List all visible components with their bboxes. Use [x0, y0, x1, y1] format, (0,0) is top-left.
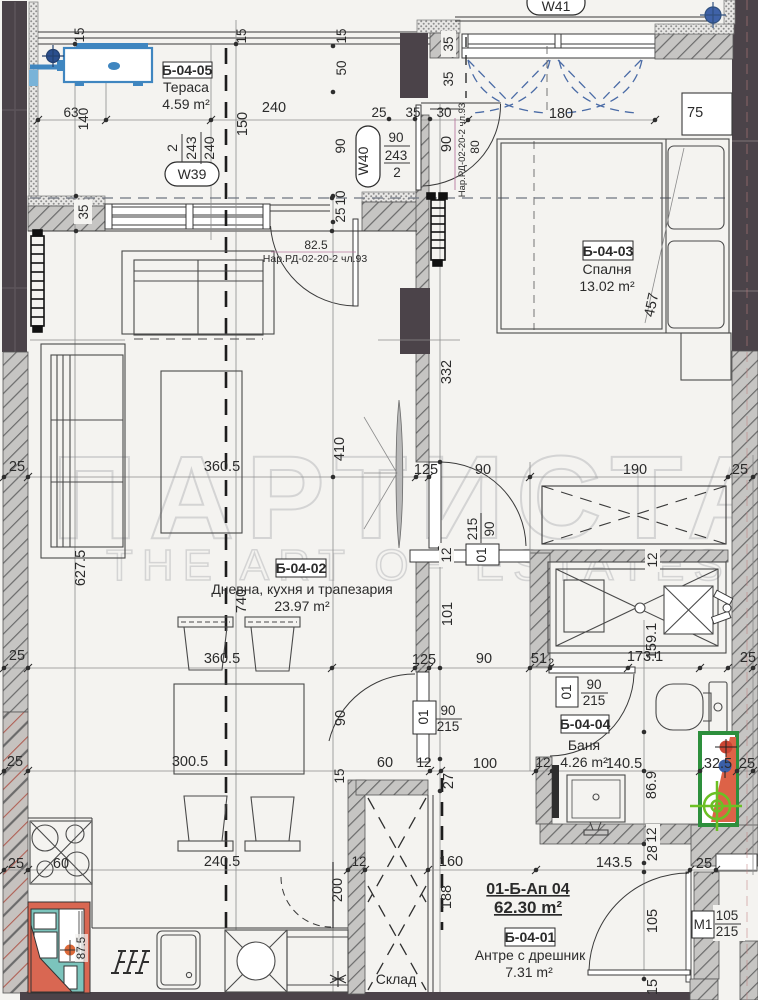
svg-text:15: 15: [234, 28, 249, 43]
svg-text:32.5: 32.5: [704, 756, 732, 772]
svg-text:Антре с дрешник: Антре с дрешник: [475, 947, 586, 963]
svg-text:12: 12: [644, 827, 659, 842]
svg-text:360.5: 360.5: [204, 459, 240, 475]
svg-text:15: 15: [72, 27, 87, 42]
svg-text:25: 25: [732, 462, 748, 478]
svg-text:35: 35: [76, 204, 91, 219]
svg-text:215: 215: [465, 518, 480, 541]
svg-text:01-Б-Ап 04: 01-Б-Ап 04: [486, 881, 570, 898]
svg-text:15: 15: [332, 768, 347, 783]
svg-text:01: 01: [474, 547, 489, 562]
svg-text:27: 27: [441, 773, 457, 789]
svg-text:23.97 m²: 23.97 m²: [274, 598, 330, 614]
svg-text:243: 243: [385, 148, 408, 163]
svg-text:90: 90: [333, 710, 349, 726]
svg-text:105: 105: [716, 908, 739, 923]
svg-text:W39: W39: [178, 166, 207, 182]
svg-text:35: 35: [405, 105, 420, 120]
svg-text:Б-04-05: Б-04-05: [162, 62, 213, 78]
svg-text:143.5: 143.5: [596, 855, 632, 871]
svg-text:332: 332: [439, 360, 455, 384]
svg-text:627.5: 627.5: [73, 550, 89, 586]
svg-text:15: 15: [645, 979, 661, 995]
svg-text:240.5: 240.5: [204, 854, 240, 870]
svg-text:35: 35: [441, 36, 456, 51]
svg-text:Склад: Склад: [376, 971, 417, 987]
svg-text:360.5: 360.5: [204, 651, 240, 667]
svg-text:140: 140: [76, 108, 91, 131]
svg-text:243: 243: [183, 136, 199, 160]
svg-text:62.30 m²: 62.30 m²: [494, 898, 562, 917]
svg-text:90: 90: [476, 651, 492, 667]
svg-text:90: 90: [439, 136, 455, 152]
svg-text:240: 240: [262, 100, 286, 116]
svg-text:180: 180: [549, 106, 573, 122]
svg-text:90: 90: [333, 138, 348, 153]
svg-text:75: 75: [687, 105, 703, 121]
svg-text:Б-04-04: Б-04-04: [560, 716, 611, 732]
svg-text:12: 12: [351, 854, 366, 869]
svg-text:90: 90: [475, 462, 491, 478]
svg-text:Тераса: Тераса: [163, 79, 209, 95]
svg-text:W41: W41: [542, 0, 571, 14]
svg-text:Спалня: Спалня: [583, 261, 632, 277]
svg-text:90: 90: [586, 677, 601, 692]
svg-text:4.26 m²: 4.26 m²: [560, 754, 608, 770]
svg-text:25: 25: [740, 650, 756, 666]
svg-text:50: 50: [334, 60, 349, 75]
svg-text:Б-04-02: Б-04-02: [276, 560, 327, 576]
svg-text:M1: M1: [694, 917, 713, 932]
svg-text:35: 35: [441, 71, 456, 86]
svg-text:190: 190: [623, 462, 647, 478]
svg-text:159.1: 159.1: [644, 623, 660, 659]
svg-text:25: 25: [333, 207, 348, 222]
svg-text:Нар.РД-02-20-2 чл.93: Нар.РД-02-20-2 чл.93: [457, 103, 468, 197]
svg-text:01: 01: [559, 684, 574, 699]
svg-text:30: 30: [436, 105, 451, 120]
svg-text:100: 100: [473, 756, 497, 772]
svg-text:7.31 m²: 7.31 m²: [505, 964, 553, 980]
svg-text:740: 740: [234, 589, 250, 613]
svg-text:125: 125: [412, 652, 436, 668]
svg-text:4.59 m²: 4.59 m²: [162, 96, 210, 112]
svg-text:90: 90: [388, 130, 403, 145]
svg-text:101: 101: [440, 602, 456, 626]
svg-text:28: 28: [645, 845, 661, 861]
svg-text:01: 01: [416, 709, 431, 724]
svg-text:25: 25: [696, 856, 712, 872]
svg-text:90: 90: [440, 703, 455, 718]
svg-text:82.5: 82.5: [304, 238, 328, 252]
svg-text:90: 90: [482, 521, 497, 536]
svg-text:12: 12: [645, 552, 660, 567]
svg-text:Б-04-01: Б-04-01: [505, 929, 556, 945]
svg-text:25: 25: [9, 648, 25, 664]
svg-text:215: 215: [437, 719, 460, 734]
svg-text:60: 60: [377, 755, 393, 771]
svg-text:10: 10: [333, 190, 348, 205]
svg-text:25: 25: [9, 459, 25, 475]
svg-text:2: 2: [393, 165, 401, 180]
svg-text:2: 2: [164, 144, 180, 152]
svg-text:188: 188: [439, 885, 455, 909]
svg-text:300.5: 300.5: [172, 754, 208, 770]
svg-text:12: 12: [416, 755, 431, 770]
svg-text:12: 12: [535, 755, 550, 770]
svg-text:160: 160: [439, 854, 463, 870]
svg-text:Нар.РД-02-20-2 чл.93: Нар.РД-02-20-2 чл.93: [263, 253, 368, 265]
svg-text:25: 25: [7, 754, 23, 770]
svg-text:60: 60: [53, 856, 69, 872]
svg-text:W40: W40: [355, 146, 371, 175]
svg-text:Баня: Баня: [568, 737, 600, 753]
svg-text:140.5: 140.5: [606, 756, 642, 772]
svg-text:12: 12: [439, 547, 454, 562]
svg-text:80: 80: [468, 140, 482, 154]
svg-text:215: 215: [716, 924, 739, 939]
svg-text:13.02 m²: 13.02 m²: [579, 278, 635, 294]
svg-text:86.9: 86.9: [644, 771, 660, 799]
svg-text:87.5: 87.5: [76, 937, 88, 959]
svg-text:240: 240: [201, 136, 217, 160]
svg-text:25: 25: [371, 105, 386, 120]
svg-text:Б-04-03: Б-04-03: [583, 243, 634, 259]
svg-text:410: 410: [332, 437, 348, 461]
svg-text:105: 105: [645, 909, 661, 933]
svg-text:150: 150: [235, 112, 251, 136]
svg-text:15: 15: [334, 28, 349, 43]
svg-text:25: 25: [8, 856, 24, 872]
svg-text:215: 215: [583, 693, 606, 708]
